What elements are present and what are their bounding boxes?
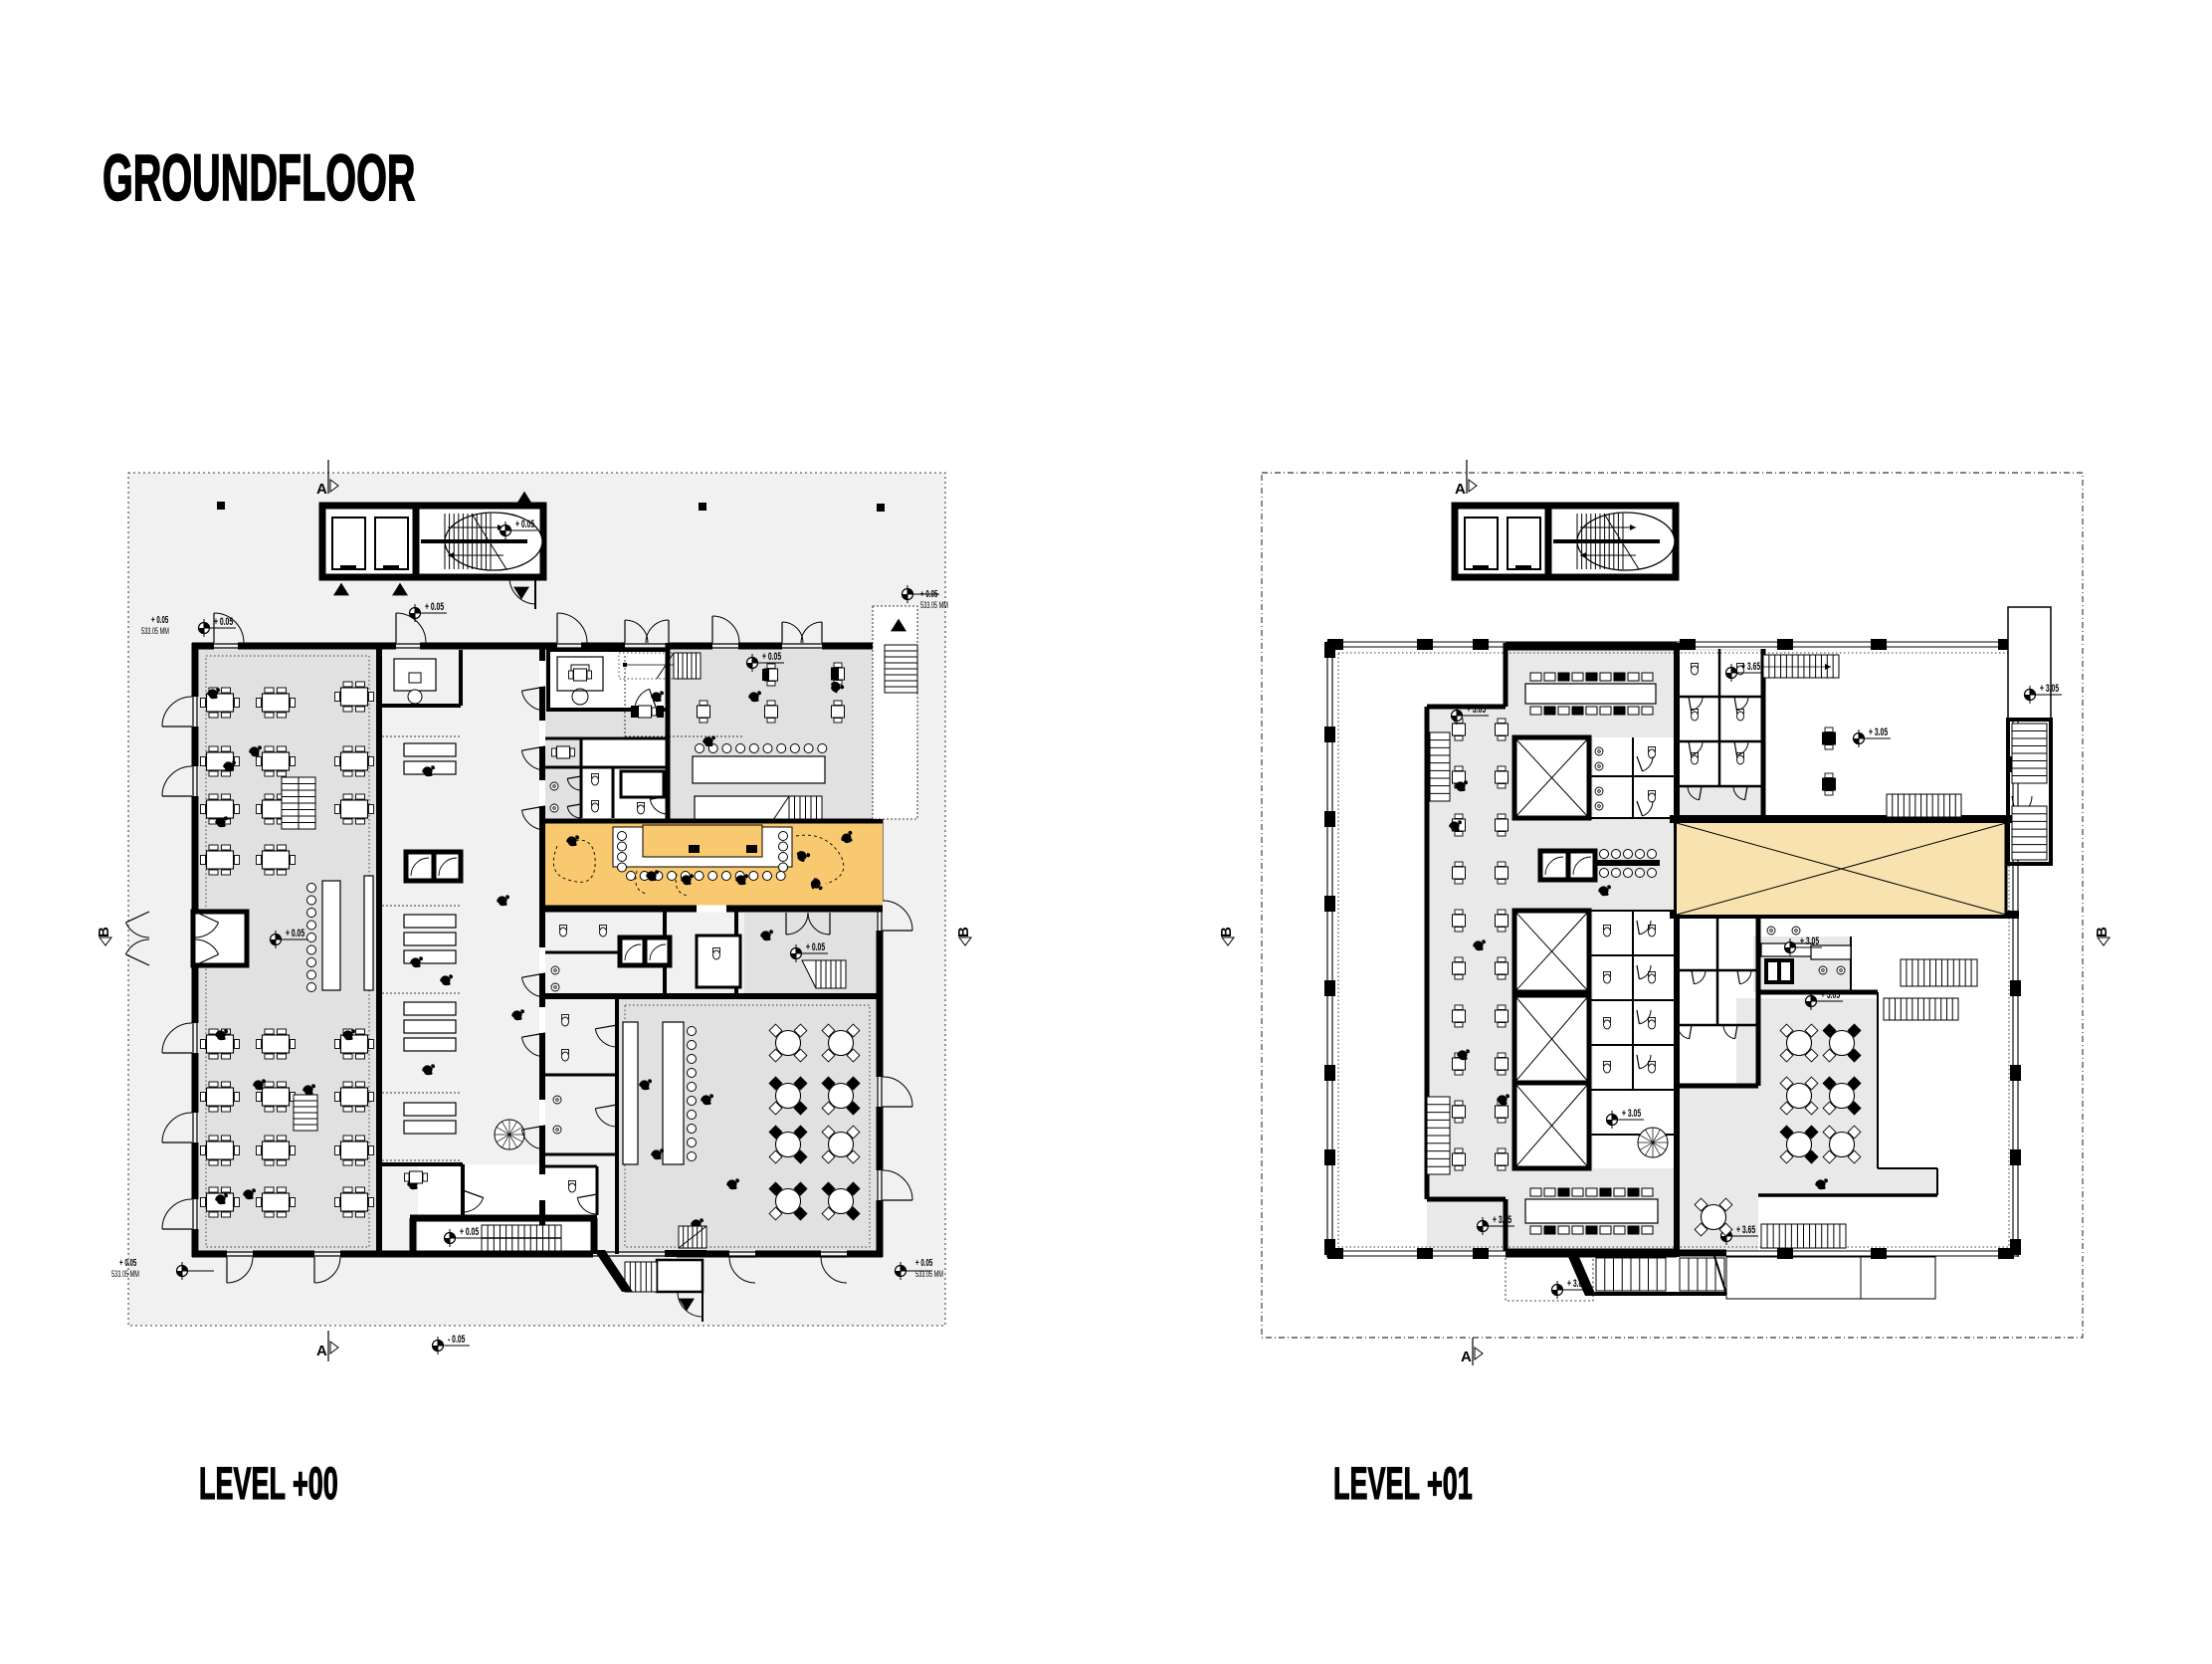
svg-text:+ 3.05: + 3.05 [1869, 726, 1888, 737]
svg-text:+ 3.05: + 3.05 [1821, 988, 1840, 1000]
svg-text:+ 3.65: + 3.65 [1567, 1277, 1586, 1289]
svg-text:B: B [2094, 927, 2111, 937]
svg-text:B: B [1218, 927, 1235, 937]
svg-text:- 0.05: - 0.05 [448, 1333, 465, 1345]
svg-text:533.05 MM: 533.05 MM [141, 626, 169, 637]
svg-text:+ 3.05: + 3.05 [1467, 703, 1486, 715]
svg-text:+ 0.05: + 0.05 [915, 1256, 933, 1268]
svg-text:+ 0.05: + 0.05 [286, 927, 304, 938]
svg-text:+ 0.05: + 0.05 [515, 518, 534, 529]
svg-text:A: A [1455, 481, 1466, 498]
svg-text:+ 0.05: + 0.05 [762, 650, 781, 662]
svg-text:+ 3.05: + 3.05 [1493, 1213, 1511, 1225]
svg-text:+ 0.05: + 0.05 [806, 940, 825, 952]
svg-text:533.05 MM: 533.05 MM [111, 1269, 139, 1280]
svg-text:+ 0.05: + 0.05 [460, 1225, 479, 1237]
svg-text:A: A [316, 481, 327, 498]
svg-text:+ 0.05: + 0.05 [920, 587, 938, 599]
svg-text:+ 3.05: + 3.05 [2040, 682, 2059, 694]
svg-text:+ 0.05: + 0.05 [151, 613, 169, 625]
svg-text:GROUNDFLOOR: GROUNDFLOOR [102, 141, 415, 215]
svg-text:+ 3.65: + 3.65 [1736, 1223, 1755, 1235]
svg-text:533.05 MM: 533.05 MM [915, 1269, 943, 1280]
svg-text:+ 3.05: + 3.05 [1622, 1107, 1641, 1119]
svg-text:A: A [1461, 1349, 1472, 1365]
svg-text:B: B [955, 927, 972, 937]
svg-text:+ 3.05: + 3.05 [1800, 935, 1819, 946]
svg-text:533.05 MM: 533.05 MM [920, 600, 948, 611]
svg-text:LEVEL +01: LEVEL +01 [1333, 1458, 1473, 1509]
svg-text:+ 0.05: + 0.05 [425, 600, 444, 612]
svg-text:A: A [316, 1343, 327, 1359]
svg-text:+ 0.05: + 0.05 [119, 1256, 137, 1268]
svg-text:B: B [96, 927, 112, 937]
svg-text:LEVEL +00: LEVEL +00 [199, 1458, 338, 1509]
svg-text:+ 3.65: + 3.65 [1741, 660, 1760, 672]
